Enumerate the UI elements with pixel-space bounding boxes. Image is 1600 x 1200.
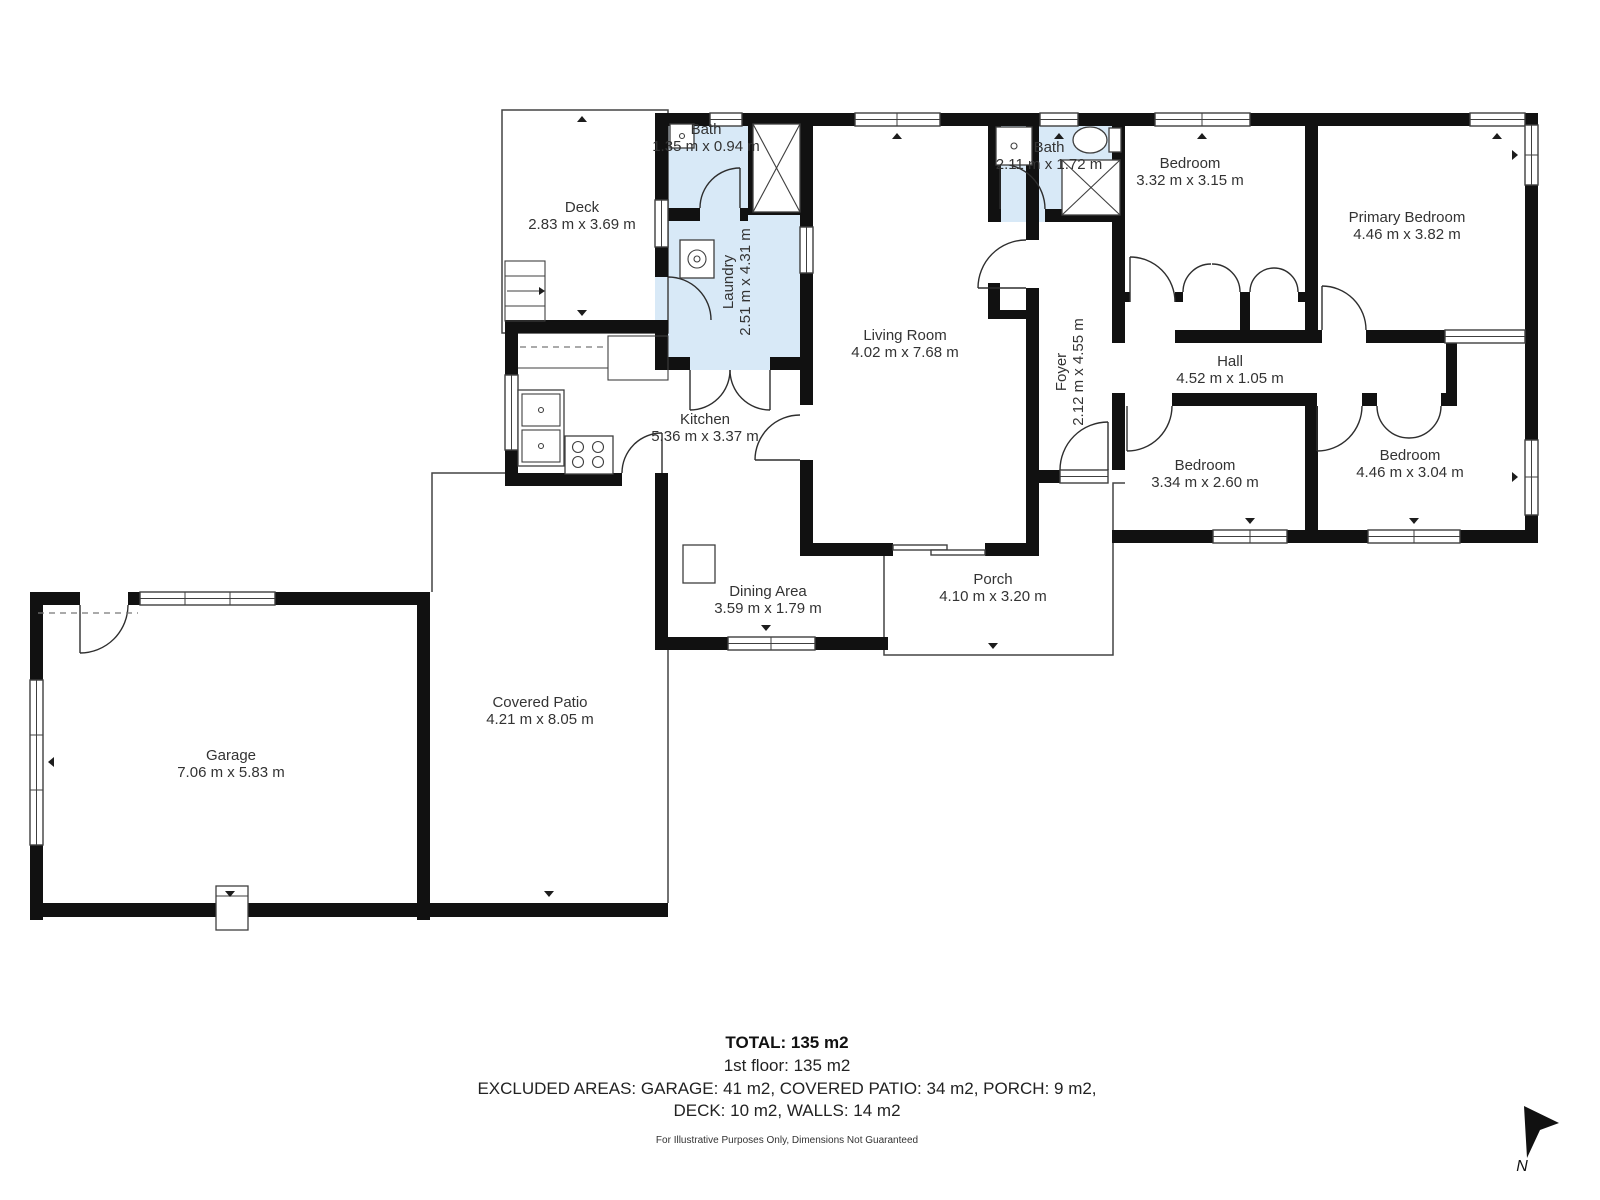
porch-outline (884, 483, 1125, 655)
room-name: Covered Patio (486, 694, 594, 711)
primary-bedroom-door (1322, 286, 1366, 330)
room-dims: 4.02 m x 7.68 m (851, 344, 959, 361)
room-dims: 2.51 m x 4.31 m (737, 228, 754, 336)
bedroom3-door (1317, 406, 1362, 451)
window (1060, 470, 1108, 483)
bedroom1-closet-bifold-doors (1183, 264, 1298, 292)
bedroom2-door (1127, 406, 1172, 451)
window (655, 200, 668, 247)
room-dims: 5.36 m x 3.37 m (651, 428, 759, 445)
room-dims: 3.34 m x 2.60 m (1151, 474, 1259, 491)
room-label-living-room: Living Room4.02 m x 7.68 m (851, 327, 959, 361)
room-label-deck: Deck2.83 m x 3.69 m (528, 199, 636, 233)
room-label-bedroom1: Bedroom3.32 m x 3.15 m (1136, 155, 1244, 189)
living-foyer-door (978, 240, 1026, 288)
sliding-door (893, 545, 985, 555)
room-label-bedroom3: Bedroom4.46 m x 3.04 m (1356, 447, 1464, 481)
laundry-double-door (690, 370, 770, 410)
room-dims: 3.59 m x 1.79 m (714, 600, 822, 617)
excluded-areas-text2: DECK: 10 m2, WALLS: 14 m2 (0, 1101, 1574, 1121)
room-name: Foyer (1053, 318, 1070, 426)
room-name: Porch (939, 571, 1047, 588)
room-dims: 4.46 m x 3.82 m (1349, 226, 1466, 243)
room-dims: 3.32 m x 3.15 m (1136, 172, 1244, 189)
washing-machine (680, 240, 714, 278)
total-area-text: TOTAL: 135 m2 (0, 1033, 1574, 1053)
room-dims: 2.12 m x 4.55 m (1070, 318, 1087, 426)
room-dims: 7.06 m x 5.83 m (177, 764, 285, 781)
room-label-garage: Garage7.06 m x 5.83 m (177, 747, 285, 781)
window (1368, 530, 1460, 543)
room-label-bath2: Bath2.11 m x 1.72 m (996, 139, 1102, 173)
kitchen-sink (518, 390, 564, 466)
north-label: N (1516, 1158, 1528, 1176)
disclaimer-text: For Illustrative Purposes Only, Dimensio… (0, 1135, 1574, 1146)
room-name: Kitchen (651, 411, 759, 428)
room-name: Living Room (851, 327, 959, 344)
room-name: Primary Bedroom (1349, 209, 1466, 226)
window (505, 375, 518, 450)
garage-entry-door (80, 605, 128, 653)
window (728, 637, 815, 650)
room-name: Laundry (720, 228, 737, 336)
room-label-primary-bedroom: Primary Bedroom4.46 m x 3.82 m (1349, 209, 1466, 243)
room-dims: 2.83 m x 3.69 m (528, 216, 636, 233)
window (1525, 125, 1538, 185)
window (1525, 440, 1538, 515)
room-name: Bedroom (1356, 447, 1464, 464)
floor-area-text: 1st floor: 135 m2 (0, 1056, 1574, 1076)
excluded-areas-text: EXCLUDED AREAS: GARAGE: 41 m2, COVERED P… (0, 1079, 1574, 1099)
window (1040, 113, 1078, 126)
kitchen-counter (518, 336, 668, 380)
room-name: Dining Area (714, 583, 822, 600)
room-dims: 4.46 m x 3.04 m (1356, 464, 1464, 481)
room-dims: 4.10 m x 3.20 m (939, 588, 1047, 605)
patio-outline-left (432, 473, 505, 592)
room-name: Hall (1176, 353, 1284, 370)
room-dims: 1.35 m x 0.94 m (652, 138, 760, 155)
room-name: Bedroom (1151, 457, 1259, 474)
window (140, 592, 275, 605)
room-name: Bath (996, 139, 1102, 156)
window (1155, 113, 1250, 126)
room-label-covered-patio: Covered Patio4.21 m x 8.05 m (486, 694, 594, 728)
kitchen-living-door (755, 415, 800, 460)
window (30, 680, 43, 845)
room-name: Deck (528, 199, 636, 216)
room-name: Bedroom (1136, 155, 1244, 172)
room-label-bath1: Bath1.35 m x 0.94 m (652, 121, 760, 155)
bedroom3-closet-bifold-doors (1377, 406, 1441, 438)
fixtures (38, 124, 1121, 930)
room-dims: 4.52 m x 1.05 m (1176, 370, 1284, 387)
bedroom1-door (1130, 257, 1175, 302)
window (1470, 113, 1525, 126)
room-dims: 4.21 m x 8.05 m (486, 711, 594, 728)
window (800, 227, 813, 273)
room-dims: 2.11 m x 1.72 m (996, 156, 1102, 173)
window (855, 113, 940, 126)
room-label-kitchen: Kitchen5.36 m x 3.37 m (651, 411, 759, 445)
room-name: Bath (652, 121, 760, 138)
room-label-foyer: Foyer2.12 m x 4.55 m (1053, 318, 1087, 426)
window (1445, 330, 1525, 343)
floorplan-page: Deck2.83 m x 3.69 m Bath1.35 m x 0.94 m … (0, 0, 1600, 1200)
window (1213, 530, 1287, 543)
dining-cabinet (683, 545, 715, 583)
front-door (1060, 422, 1108, 470)
room-label-hall: Hall4.52 m x 1.05 m (1176, 353, 1284, 387)
room-label-porch: Porch4.10 m x 3.20 m (939, 571, 1047, 605)
stove (565, 436, 613, 474)
room-label-bedroom2: Bedroom3.34 m x 2.60 m (1151, 457, 1259, 491)
deck-stairs (505, 261, 545, 321)
room-label-laundry: Laundry2.51 m x 4.31 m (720, 228, 754, 336)
room-label-dining-area: Dining Area3.59 m x 1.79 m (714, 583, 822, 617)
room-name: Garage (177, 747, 285, 764)
shower-stall (753, 124, 800, 212)
